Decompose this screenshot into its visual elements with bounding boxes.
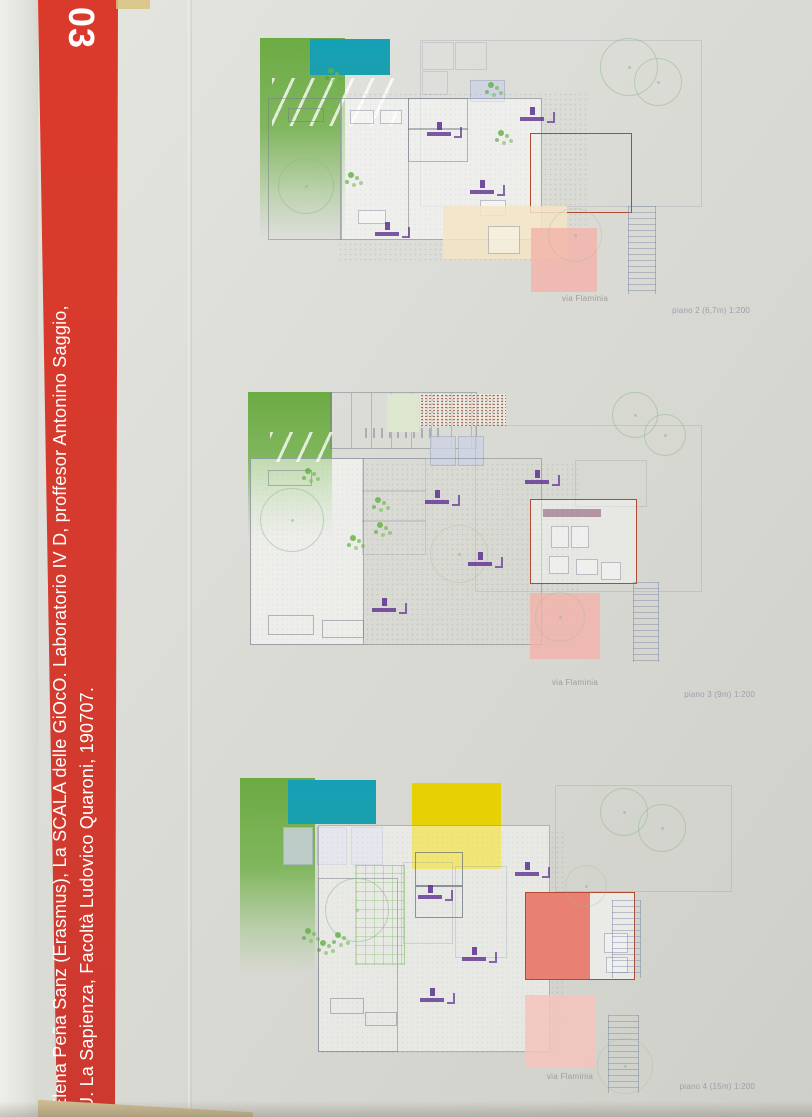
- plant-icon: [328, 68, 334, 74]
- floor-plan-piano-3: via Flaminia piano 3 (9m) 1:200: [230, 370, 760, 705]
- plant-icon: [350, 535, 356, 541]
- staircase-icon: [633, 582, 659, 662]
- plant-icon: [377, 522, 383, 528]
- lift-marker-icon: [525, 470, 559, 490]
- plan-caption: piano 4 (15m) 1:200: [605, 1082, 755, 1091]
- garden-bench: [288, 108, 324, 122]
- lift-marker-icon: [420, 988, 454, 1008]
- pergola-grid: [355, 865, 405, 965]
- plant-icon: [375, 497, 381, 503]
- plant-icon: [320, 940, 326, 946]
- photo-shadow: [0, 1101, 812, 1117]
- sofa: [601, 562, 621, 580]
- lift-marker-icon: [470, 180, 504, 200]
- plant-icon: [348, 172, 354, 178]
- street-label: via Flaminia: [515, 678, 635, 687]
- interior-room: [362, 458, 426, 492]
- tree-icon: [535, 592, 585, 642]
- tree-icon: [278, 158, 334, 214]
- street-label: via Flaminia: [510, 1072, 630, 1081]
- tree-icon: [548, 208, 602, 262]
- plant-icon: [488, 82, 494, 88]
- furniture-block: [283, 827, 313, 865]
- background-wall-strip: [0, 0, 38, 1117]
- banner-title-line1: Elena Peña Sanz (Erasmus), La SCALA dell…: [50, 305, 71, 1110]
- lift-marker-icon: [372, 598, 406, 618]
- pale-green-court: [387, 394, 419, 432]
- sheet-number: 03: [60, 7, 102, 49]
- adjacent-room: [455, 42, 487, 70]
- red-outlined-room: [530, 499, 637, 584]
- parking-dashes: [270, 432, 335, 462]
- street-label: via Flaminia: [525, 294, 645, 303]
- lift-marker-icon: [520, 107, 554, 127]
- furniture: [322, 620, 364, 638]
- red-outlined-room: [530, 133, 632, 213]
- lift-marker-icon: [375, 222, 409, 242]
- furniture: [380, 110, 402, 124]
- interior-room: [362, 520, 426, 555]
- lift-marker-icon: [427, 122, 461, 142]
- plant-icon: [305, 468, 311, 474]
- tree-icon: [565, 865, 607, 907]
- banner-title-line2: U. La Sapienza, Facoltà Ludovico Quaroni…: [77, 687, 98, 1110]
- adjacent-room: [422, 42, 454, 70]
- plant-icon: [335, 932, 341, 938]
- plan-caption: piano 3 (9m) 1:200: [615, 690, 755, 699]
- pool: [288, 780, 376, 824]
- tree-icon: [644, 414, 686, 456]
- tape-fragment: [116, 0, 150, 9]
- plant-icon: [498, 130, 504, 136]
- furniture: [268, 615, 314, 635]
- furniture: [365, 1012, 397, 1026]
- floor-plan-piano-2: via Flaminia piano 2 (6,7m) 1:200: [230, 30, 760, 330]
- lift-marker-icon: [418, 885, 452, 905]
- furniture: [350, 110, 374, 124]
- tree-icon: [634, 58, 682, 106]
- pool: [310, 39, 390, 75]
- floor-plan-piano-4: via Flaminia piano 4 (15m) 1:200: [225, 770, 770, 1100]
- plan-caption: piano 2 (6,7m) 1:200: [610, 306, 750, 315]
- lift-marker-icon: [425, 490, 459, 510]
- sofa: [576, 559, 598, 575]
- interior-room: [362, 490, 426, 522]
- lift-marker-icon: [468, 552, 502, 572]
- sofa: [571, 526, 589, 548]
- sofa: [551, 526, 569, 548]
- vegetation-texture: [420, 394, 506, 426]
- staircase-icon: [612, 900, 641, 978]
- tree-icon: [638, 804, 686, 852]
- lift-marker-icon: [515, 862, 549, 882]
- tree-icon: [260, 488, 324, 552]
- poster-photo: 03 Elena Peña Sanz (Erasmus), La SCALA d…: [0, 0, 812, 1117]
- sofa: [549, 556, 569, 574]
- paper-crease: [188, 0, 192, 1117]
- plant-icon: [305, 928, 311, 934]
- kitchen-counter: [543, 509, 601, 517]
- staircase-icon: [628, 206, 656, 294]
- faint-room: [455, 866, 507, 958]
- pink-zone: [525, 995, 596, 1068]
- lift-marker-icon: [462, 947, 496, 967]
- terrace-table: [488, 226, 520, 254]
- furniture: [330, 998, 364, 1014]
